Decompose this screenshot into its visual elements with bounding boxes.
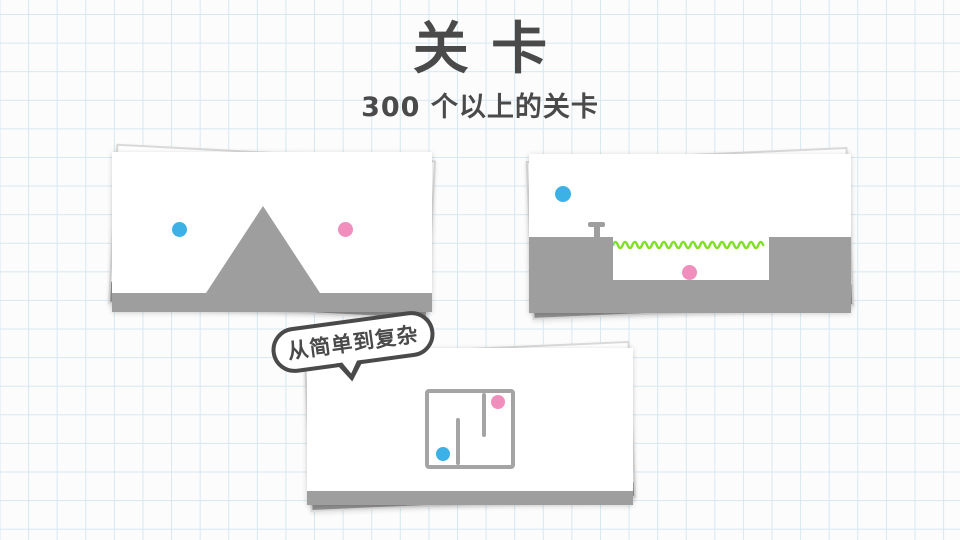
ground-ledge-right [769, 237, 851, 313]
pink-dot-icon [491, 395, 505, 409]
water-wave-icon [613, 238, 768, 250]
level-card-triangle [112, 152, 432, 312]
level-card-water-pit [529, 154, 851, 313]
speech-bubble-tail-fill [339, 356, 361, 375]
triangle-obstacle-icon [206, 206, 320, 293]
level-card-triangle-front [112, 152, 432, 312]
page-title: 关卡 [0, 4, 960, 85]
ground-floor [112, 293, 432, 312]
blue-dot-icon [172, 222, 187, 237]
ground-ledge-left [529, 237, 613, 313]
levels-promo-screen: 关卡 300 个以上的关卡 [0, 0, 960, 540]
blue-dot-icon [555, 186, 571, 202]
pink-dot-icon [338, 222, 353, 237]
page-subtitle: 300 个以上的关卡 [0, 85, 960, 124]
pink-dot-icon [682, 265, 697, 280]
level-card-water-pit-front [529, 154, 851, 313]
plunger-stem [594, 226, 600, 238]
maze-wall-top [482, 393, 486, 437]
maze-wall-bottom [456, 418, 460, 465]
blue-dot-icon [436, 447, 450, 461]
ground-floor [307, 491, 633, 505]
